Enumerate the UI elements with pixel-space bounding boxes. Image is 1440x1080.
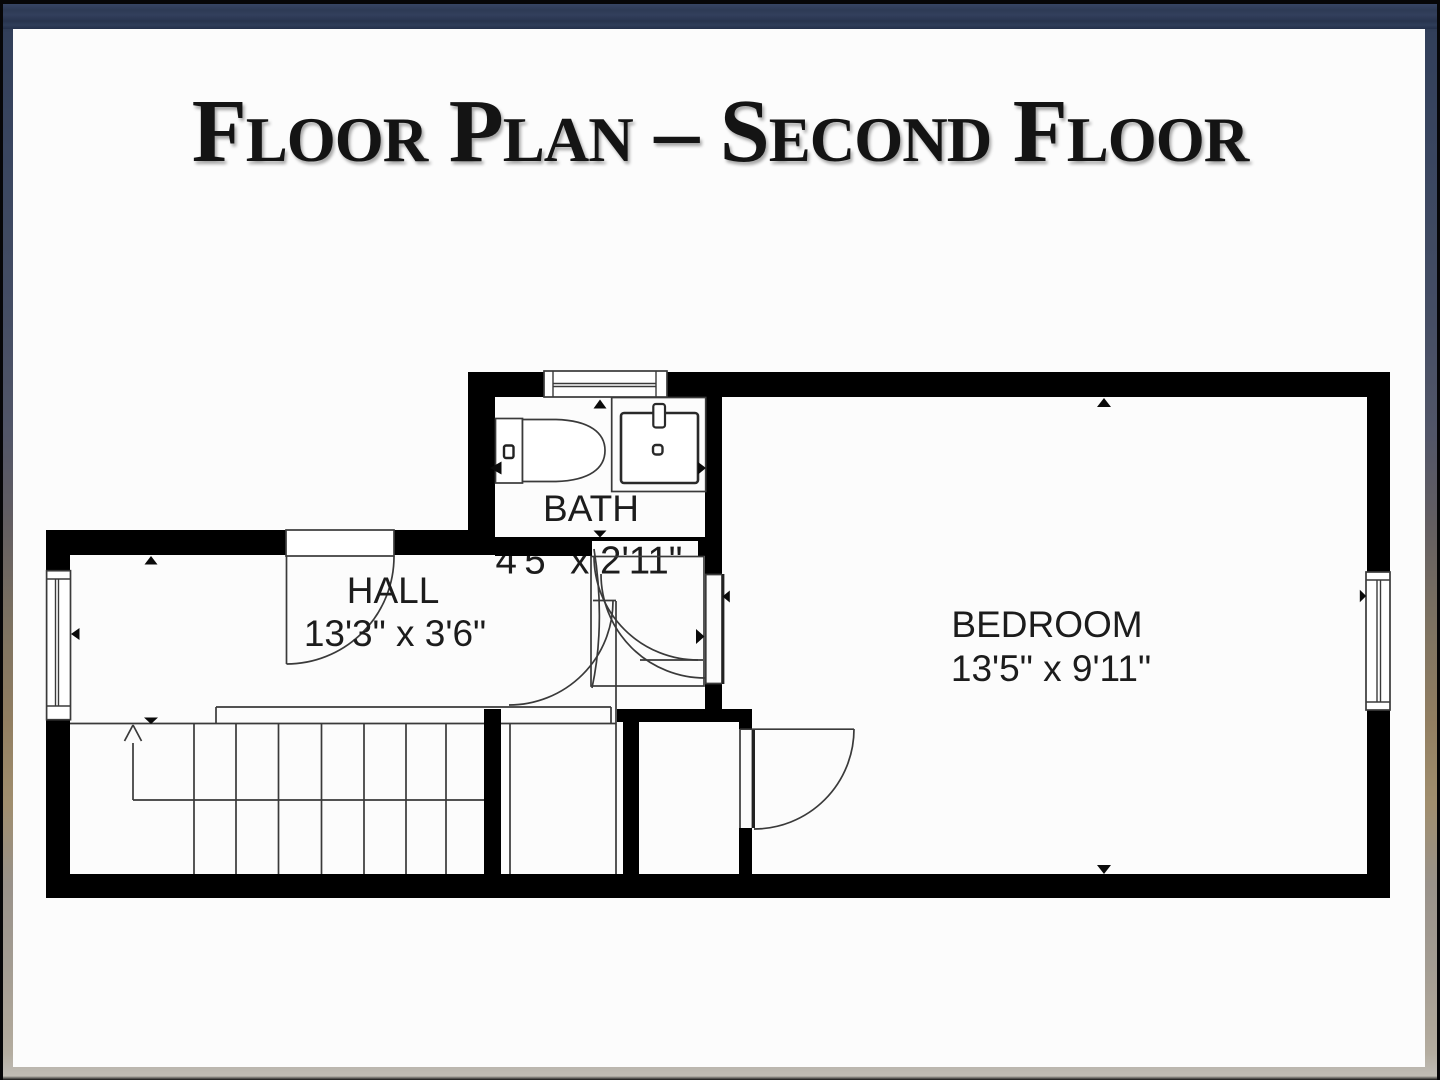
svg-text:13'5" x 9'11": 13'5" x 9'11": [951, 648, 1151, 689]
svg-text:BATH: BATH: [543, 488, 639, 529]
svg-text:HALL: HALL: [347, 570, 440, 611]
svg-text:13'3" x 3'6": 13'3" x 3'6": [304, 613, 486, 654]
svg-text:BEDROOM: BEDROOM: [951, 604, 1142, 645]
